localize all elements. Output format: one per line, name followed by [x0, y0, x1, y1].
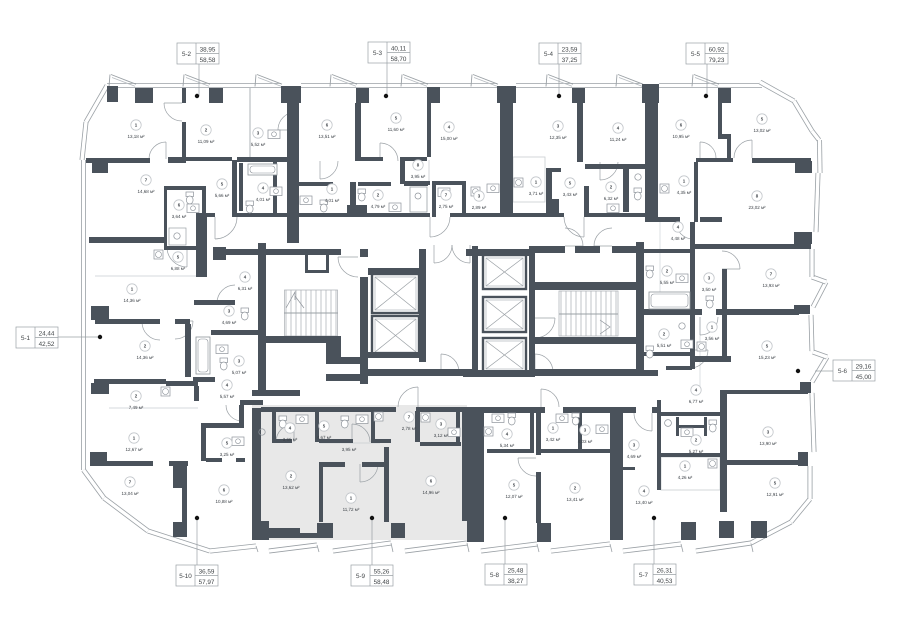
svg-text:13,62 м²: 13,62 м²	[282, 485, 300, 490]
svg-text:4,69 м²: 4,69 м²	[627, 454, 642, 459]
svg-text:5,34 м²: 5,34 м²	[500, 443, 515, 448]
svg-text:55,26: 55,26	[374, 568, 390, 575]
svg-text:11,60 м²: 11,60 м²	[388, 127, 405, 132]
svg-text:23,02 м²: 23,02 м²	[748, 205, 766, 210]
svg-text:6,31 м²: 6,31 м²	[238, 286, 253, 291]
svg-text:5,51 м²: 5,51 м²	[657, 343, 672, 348]
svg-text:14,68 м²: 14,68 м²	[137, 189, 155, 194]
svg-text:5-7: 5-7	[639, 572, 649, 579]
svg-text:5,52 м²: 5,52 м²	[251, 142, 266, 147]
svg-text:5,27 м²: 5,27 м²	[689, 449, 704, 454]
svg-text:29,16: 29,16	[856, 363, 872, 370]
svg-text:12,91 м²: 12,91 м²	[766, 492, 784, 497]
svg-text:38,27: 38,27	[508, 578, 524, 585]
svg-text:3,42 м²: 3,42 м²	[546, 437, 561, 442]
svg-text:58,58: 58,58	[200, 57, 216, 64]
svg-text:13,04 м²: 13,04 м²	[121, 491, 139, 496]
svg-text:12,67 м²: 12,67 м²	[125, 447, 143, 452]
svg-text:13,18 м²: 13,18 м²	[127, 134, 145, 139]
svg-text:4,79 м²: 4,79 м²	[371, 204, 386, 209]
svg-text:3,95 м²: 3,95 м²	[342, 447, 357, 452]
svg-text:10,88 м²: 10,88 м²	[215, 499, 233, 504]
svg-text:4,01 м²: 4,01 м²	[325, 198, 340, 203]
svg-text:6,32 м²: 6,32 м²	[604, 196, 619, 201]
svg-text:5-6: 5-6	[838, 368, 848, 375]
svg-text:15,00 м²: 15,00 м²	[440, 136, 458, 141]
svg-text:13,93 м²: 13,93 м²	[762, 283, 780, 288]
svg-text:12,07 м²: 12,07 м²	[505, 494, 523, 499]
svg-text:36,59: 36,59	[199, 568, 215, 575]
svg-text:14,36 м²: 14,36 м²	[136, 355, 154, 360]
svg-text:13,41 м²: 13,41 м²	[566, 497, 584, 502]
svg-text:13,40 м²: 13,40 м²	[635, 500, 653, 505]
svg-text:2,75 м²: 2,75 м²	[439, 204, 454, 209]
svg-text:13,02 м²: 13,02 м²	[753, 128, 771, 133]
svg-text:3,43 м²: 3,43 м²	[563, 192, 578, 197]
svg-text:7,49 м²: 7,49 м²	[129, 405, 144, 410]
svg-text:11,24 м²: 11,24 м²	[610, 137, 627, 142]
svg-text:5-8: 5-8	[490, 572, 500, 579]
svg-text:57,97: 57,97	[199, 579, 215, 586]
svg-text:11,72 м²: 11,72 м²	[343, 507, 360, 512]
svg-text:5-4: 5-4	[544, 51, 554, 58]
svg-text:3,56 м²: 3,56 м²	[705, 336, 720, 341]
svg-text:5-3: 5-3	[373, 50, 383, 57]
svg-text:3,66 м²: 3,66 м²	[283, 437, 298, 442]
svg-text:5,07 м²: 5,07 м²	[232, 370, 247, 375]
svg-text:79,23: 79,23	[709, 57, 725, 64]
svg-text:5-9: 5-9	[356, 573, 366, 580]
svg-text:2,89 м²: 2,89 м²	[472, 205, 487, 210]
svg-text:25,48: 25,48	[508, 567, 524, 574]
svg-text:2,78 м²: 2,78 м²	[402, 426, 417, 431]
svg-text:3,12 м²: 3,12 м²	[434, 433, 449, 438]
svg-text:6,88 м²: 6,88 м²	[171, 266, 186, 271]
svg-text:58,48: 58,48	[374, 579, 390, 586]
svg-text:4,67 м²: 4,67 м²	[317, 435, 332, 440]
svg-text:38,95: 38,95	[200, 46, 216, 53]
svg-text:3,64 м²: 3,64 м²	[172, 214, 187, 219]
svg-text:45,00: 45,00	[856, 374, 872, 381]
svg-text:5-2: 5-2	[182, 51, 192, 58]
svg-text:4,03 м²: 4,03 м²	[578, 439, 593, 444]
svg-text:4,69 м²: 4,69 м²	[222, 320, 237, 325]
svg-text:5-5: 5-5	[691, 51, 701, 58]
svg-text:15,23 м²: 15,23 м²	[758, 355, 776, 360]
svg-text:4,26 м²: 4,26 м²	[678, 475, 693, 480]
svg-text:40,53: 40,53	[657, 578, 673, 585]
svg-text:10,95 м²: 10,95 м²	[672, 134, 690, 139]
svg-text:58,70: 58,70	[391, 56, 407, 63]
svg-text:13,90 м²: 13,90 м²	[759, 441, 777, 446]
svg-text:14,36 м²: 14,36 м²	[123, 298, 141, 303]
svg-text:37,25: 37,25	[562, 57, 578, 64]
svg-text:5,66 м²: 5,66 м²	[215, 193, 230, 198]
svg-text:60,92: 60,92	[709, 46, 725, 53]
svg-text:12,35 м²: 12,35 м²	[549, 135, 567, 140]
svg-text:14,96 м²: 14,96 м²	[422, 490, 440, 495]
svg-text:5,55 м²: 5,55 м²	[660, 280, 675, 285]
svg-text:3,25 м²: 3,25 м²	[220, 452, 235, 457]
svg-text:3,95 м²: 3,95 м²	[411, 174, 426, 179]
svg-text:3,50 м²: 3,50 м²	[702, 287, 717, 292]
svg-text:4,35 м²: 4,35 м²	[677, 190, 692, 195]
svg-text:4,48 м²: 4,48 м²	[671, 236, 686, 241]
svg-text:42,52: 42,52	[39, 341, 55, 348]
svg-text:40,11: 40,11	[391, 45, 407, 52]
svg-text:3,71 м²: 3,71 м²	[529, 191, 544, 196]
svg-text:23,59: 23,59	[562, 46, 578, 53]
svg-text:11,09 м²: 11,09 м²	[198, 139, 215, 144]
svg-text:5-1: 5-1	[21, 335, 31, 342]
svg-text:5,57 м²: 5,57 м²	[220, 394, 235, 399]
svg-text:4,01 м²: 4,01 м²	[256, 197, 271, 202]
svg-text:24,44: 24,44	[39, 330, 55, 337]
svg-text:5-10: 5-10	[179, 573, 192, 580]
svg-text:13,51 м²: 13,51 м²	[318, 134, 336, 139]
svg-text:6,77 м²: 6,77 м²	[689, 399, 704, 404]
svg-text:26,31: 26,31	[657, 567, 673, 574]
